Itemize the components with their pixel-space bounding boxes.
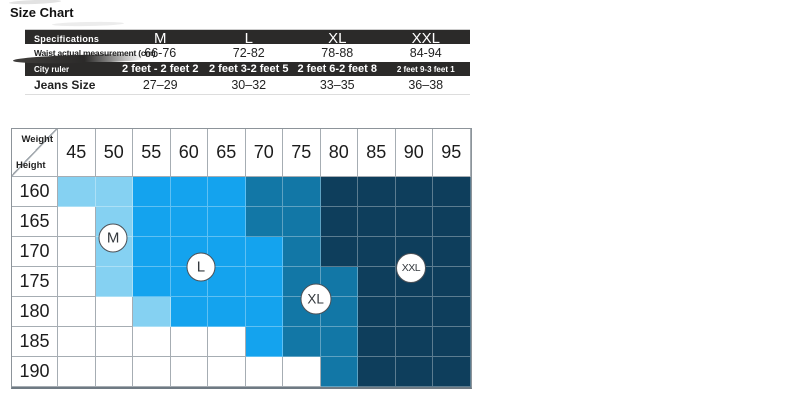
grid-cell-size-xxl [321,237,359,267]
grid-cell-size-xl [246,177,284,207]
weight-column-header: 70 [246,129,284,177]
grid-cell-size-l [246,237,284,267]
grid-cell-empty [133,357,171,387]
height-row-label: 190 [12,357,58,387]
grid-cell-size-xl [283,207,321,237]
spec-size-column-header: XL [293,30,382,47]
grid-cell-size-xxl [396,327,434,357]
spec-header-row: SpecificationsMLXLXXL [25,30,470,44]
grid-cell-empty [171,327,209,357]
spec-cell-value: 30–32 [205,78,294,92]
grid-cell-size-m [96,267,134,297]
grid-cell-size-l [208,177,246,207]
grid-cell-empty [58,327,96,357]
size-marker-xl: XL [300,284,331,315]
grid-cell-empty [208,357,246,387]
grid-cell-size-xxl [321,207,359,237]
grid-cell-size-xl [283,237,321,267]
size-marker-l: L [186,253,215,282]
grid-cell-empty [58,357,96,387]
grid-cell-size-m [58,177,96,207]
size-marker-xxl: XXL [396,253,426,283]
weight-column-header: 90 [396,129,434,177]
spec-cell-value: 84-94 [382,46,471,60]
spec-row-label: City ruler [25,65,116,74]
grid-cell-size-xl [321,357,359,387]
spec-table-row: City ruler2 feet - 2 feet 22 feet 3-2 fe… [25,62,470,76]
grid-cell-size-m [96,177,134,207]
spec-table-row: Jeans Size27–2930–3233–3536–38 [25,76,470,94]
spec-cell-value: 2 feet - 2 feet 2 [116,63,205,75]
grid-cell-empty [208,327,246,357]
grid-cell-size-l [208,297,246,327]
height-row-label: 185 [12,327,58,357]
grid-cell-size-xxl [358,327,396,357]
height-row-label: 170 [12,237,58,267]
grid-cell-size-xl [321,327,359,357]
grid-cell-empty [246,357,284,387]
grid-cell-size-l [246,267,284,297]
weight-column-header: 95 [433,129,471,177]
grid-cell-size-l [246,327,284,357]
size-marker-m: M [99,223,128,252]
height-row-label: 165 [12,207,58,237]
grid-cell-empty [283,357,321,387]
grid-cell-size-l [171,297,209,327]
spec-cell-value: 36–38 [382,78,471,92]
grid-cell-size-l [133,177,171,207]
grid-cell-size-xxl [433,297,471,327]
grid-cell-size-xxl [358,177,396,207]
grid-cell-empty [58,297,96,327]
grid-cell-size-xxl [358,297,396,327]
spec-size-column-header: XXL [382,30,471,47]
spec-cell-value: 2 feet 9-3 feet 1 [382,65,471,74]
grid-cell-empty [96,327,134,357]
grid-cell-size-xxl [358,237,396,267]
weight-column-header: 50 [96,129,134,177]
grid-cell-empty [58,267,96,297]
grid-cell-size-l [133,237,171,267]
grid-cell-empty [58,207,96,237]
grid-cell-size-xxl [433,237,471,267]
spec-cell-value: 33–35 [293,78,382,92]
spec-size-column-header: L [205,30,294,47]
weight-axis-label: Weight [22,134,54,145]
grid-cell-empty [133,327,171,357]
grid-cell-size-xxl [396,177,434,207]
grid-cell-empty [96,357,134,387]
size-grid-chart: WeightHeight4550556065707580859095160165… [11,128,472,389]
grid-cell-size-l [171,207,209,237]
page-title: Size Chart [10,5,74,20]
grid-cell-size-l [133,207,171,237]
weight-column-header: 60 [171,129,209,177]
grid-cell-size-xl [283,177,321,207]
grid-cell-size-l [246,297,284,327]
spec-cell-value: 2 feet 6-2 feet 8 [293,63,382,75]
spec-header-label: Specifications [25,34,116,44]
weight-column-header: 45 [58,129,96,177]
height-axis-label: Height [16,160,46,171]
spec-cell-value: 27–29 [116,78,205,92]
grid-cell-size-xxl [358,207,396,237]
grid-cell-size-xxl [358,357,396,387]
grid-cell-size-xl [283,327,321,357]
spec-cell-value: 72-82 [205,46,294,60]
weight-column-header: 75 [283,129,321,177]
grid-cell-size-xxl [396,357,434,387]
grid-cell-size-xxl [396,207,434,237]
grid-cell-size-xxl [433,267,471,297]
artifact-smudge-mid [52,21,124,26]
height-row-label: 180 [12,297,58,327]
grid-cell-size-xxl [433,177,471,207]
grid-cell-size-xxl [321,177,359,207]
grid-cell-size-xxl [433,327,471,357]
grid-cell-size-l [208,207,246,237]
size-chart-page: Size Chart SpecificationsMLXLXXLWaist ac… [0,0,800,400]
spec-cell-value: 78-88 [293,46,382,60]
grid-cell-size-xxl [433,357,471,387]
spec-size-column-header: M [116,30,205,47]
grid-cell-size-m [133,297,171,327]
grid-corner-cell: WeightHeight [12,129,58,177]
grid-cell-size-xxl [396,297,434,327]
height-row-label: 160 [12,177,58,207]
grid-cell-size-l [171,177,209,207]
grid-cell-size-xl [246,207,284,237]
grid-cell-empty [58,237,96,267]
spec-cell-value: 2 feet 3-2 feet 5 [205,63,294,75]
grid-cell-empty [96,297,134,327]
weight-column-header: 55 [133,129,171,177]
weight-column-header: 85 [358,129,396,177]
grid-cell-size-xxl [433,207,471,237]
grid-cell-size-l [133,267,171,297]
weight-column-header: 65 [208,129,246,177]
grid-cell-size-xxl [358,267,396,297]
spec-row-label: Jeans Size [25,78,116,92]
height-row-label: 175 [12,267,58,297]
weight-column-header: 80 [321,129,359,177]
grid-cell-empty [171,357,209,387]
